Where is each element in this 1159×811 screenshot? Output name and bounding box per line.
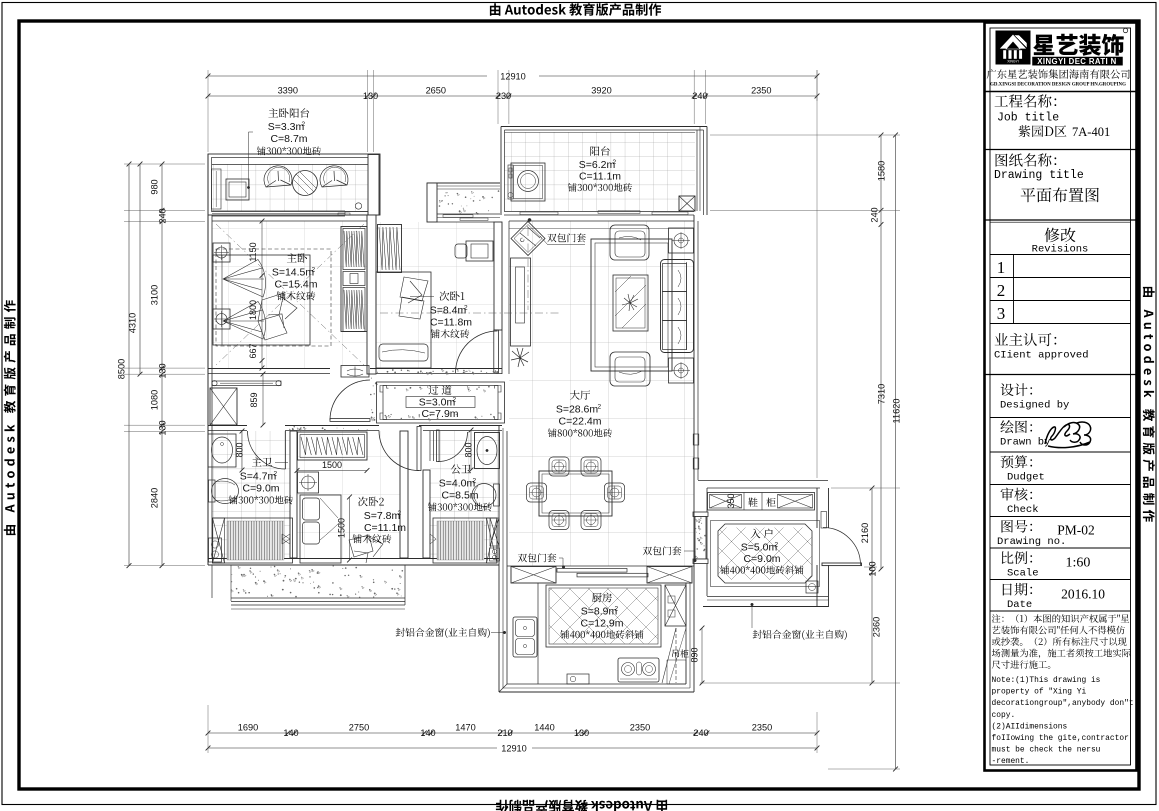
svg-text:2750: 2750 <box>349 723 369 733</box>
svg-text:890: 890 <box>690 647 700 662</box>
svg-text:C=9.0m: C=9.0m <box>743 553 780 565</box>
svg-text:11620: 11620 <box>892 399 902 424</box>
svg-text:C=11.1m: C=11.1m <box>579 171 621 183</box>
svg-text:2: 2 <box>453 397 457 404</box>
svg-text:copy.: copy. <box>992 711 1016 720</box>
svg-text:C=8.5m: C=8.5m <box>441 490 478 502</box>
svg-text:2: 2 <box>312 267 316 274</box>
svg-text:1500: 1500 <box>322 460 342 470</box>
svg-text:2350: 2350 <box>752 723 772 733</box>
svg-text:Drawing title: Drawing title <box>994 169 1084 182</box>
svg-text:2: 2 <box>613 159 617 166</box>
svg-text:2160: 2160 <box>860 523 870 543</box>
svg-text:2: 2 <box>473 478 477 485</box>
svg-text:C=11.1m: C=11.1m <box>364 522 406 534</box>
svg-text:3100: 3100 <box>150 285 160 305</box>
svg-text:S=5.0m: S=5.0m <box>741 542 778 554</box>
svg-text:240: 240 <box>870 207 880 222</box>
svg-text:XINGYI DEC RATI N: XINGYI DEC RATI N <box>1037 57 1116 66</box>
svg-text:240: 240 <box>693 728 708 738</box>
svg-text:Date: Date <box>1007 599 1032 611</box>
svg-text:8500: 8500 <box>117 359 127 379</box>
svg-text:C=12.9m: C=12.9m <box>581 618 624 630</box>
svg-text:4310: 4310 <box>128 313 138 333</box>
svg-text:2650: 2650 <box>426 86 446 96</box>
svg-text:2: 2 <box>398 510 402 517</box>
svg-text:859: 859 <box>249 392 259 407</box>
svg-text:1150: 1150 <box>248 242 258 261</box>
svg-text:Revisions: Revisions <box>1032 244 1089 256</box>
svg-text:1580: 1580 <box>877 161 887 181</box>
svg-text:130: 130 <box>158 420 168 435</box>
svg-text:Designed by: Designed by <box>1000 400 1069 412</box>
svg-text:800: 800 <box>464 442 474 457</box>
svg-text:C=9.0m: C=9.0m <box>242 483 279 495</box>
svg-text:C=15.4m: C=15.4m <box>275 279 318 291</box>
svg-text:S=14.5m: S=14.5m <box>272 267 315 279</box>
svg-text:XINGYI: XINGYI <box>1007 60 1019 64</box>
svg-text:1080: 1080 <box>150 390 160 410</box>
svg-text:S=8.9m: S=8.9m <box>581 606 618 618</box>
svg-text:1690: 1690 <box>238 723 258 733</box>
svg-text:2: 2 <box>274 471 278 478</box>
svg-text:S=3.3m: S=3.3m <box>268 121 305 133</box>
svg-text:210: 210 <box>497 728 512 738</box>
svg-text:3: 3 <box>997 304 1006 323</box>
svg-text:S=7.8m: S=7.8m <box>364 510 401 522</box>
svg-text:S=6.2m: S=6.2m <box>579 159 616 171</box>
svg-text:1: 1 <box>997 258 1006 277</box>
svg-text:Job title: Job title <box>997 112 1059 125</box>
svg-text:12910: 12910 <box>501 744 527 754</box>
svg-text:3920: 3920 <box>591 86 611 96</box>
svg-text:3390: 3390 <box>278 86 298 96</box>
svg-text:2350: 2350 <box>630 723 650 733</box>
svg-text:12910: 12910 <box>500 72 526 82</box>
svg-text:S=4.7m: S=4.7m <box>240 471 277 483</box>
svg-text:2840: 2840 <box>150 488 160 508</box>
svg-text:S=4.0m: S=4.0m <box>439 478 476 490</box>
svg-text:Drawing no.: Drawing no. <box>997 536 1066 548</box>
svg-text:Dudget: Dudget <box>1007 472 1045 484</box>
svg-text:2: 2 <box>997 281 1006 300</box>
svg-text:1470: 1470 <box>455 723 475 733</box>
svg-text:must be check the nersu: must be check the nersu <box>992 746 1101 755</box>
svg-text:2: 2 <box>302 121 306 128</box>
svg-text:GD.XINGSI DECORATION DESIGN GR: GD.XINGSI DECORATION DESIGN GROUP HN.GRO… <box>990 83 1126 88</box>
svg-text:Scale: Scale <box>1007 568 1039 580</box>
svg-text:240: 240 <box>158 208 168 223</box>
svg-text:C=7.9m: C=7.9m <box>421 408 458 420</box>
svg-text:2360: 2360 <box>872 617 882 637</box>
svg-text:2: 2 <box>598 404 602 411</box>
svg-text:1:60: 1:60 <box>1066 556 1091 571</box>
svg-text:S=3.0m: S=3.0m <box>419 397 456 409</box>
svg-text:1800: 1800 <box>248 300 258 320</box>
svg-text:Check: Check <box>1007 504 1039 516</box>
svg-text:foIIowing the gite,contractor: foIIowing the gite,contractor <box>992 734 1130 743</box>
svg-text:decorationgroup",anybody don"t: decorationgroup",anybody don"t <box>992 699 1134 708</box>
svg-text:CIient approved: CIient approved <box>994 350 1089 362</box>
svg-text:130: 130 <box>363 91 378 101</box>
svg-text:140: 140 <box>283 728 298 738</box>
svg-text:1500: 1500 <box>337 518 347 538</box>
svg-text:2016.10: 2016.10 <box>1061 587 1105 602</box>
svg-text:(2)AIIdimensions: (2)AIIdimensions <box>992 722 1068 731</box>
svg-text:100: 100 <box>868 561 878 576</box>
svg-text:7310: 7310 <box>877 384 887 404</box>
svg-text:Note:(1)This drawing is: Note:(1)This drawing is <box>992 676 1101 685</box>
svg-text:2: 2 <box>775 542 779 549</box>
svg-text:C=11.8m: C=11.8m <box>430 317 472 329</box>
svg-text:350: 350 <box>726 493 736 508</box>
svg-text:1440: 1440 <box>534 723 554 733</box>
svg-text:130: 130 <box>574 728 589 738</box>
svg-text:-rement.: -rement. <box>992 757 1030 766</box>
svg-text:C=8.7m: C=8.7m <box>270 133 307 145</box>
svg-text:property of "Xing Yi: property of "Xing Yi <box>992 688 1087 697</box>
svg-text:980: 980 <box>150 179 160 194</box>
svg-text:240: 240 <box>692 91 707 101</box>
svg-text:140: 140 <box>420 728 435 738</box>
svg-text:C=22.4m: C=22.4m <box>559 416 602 428</box>
svg-text:PM-02: PM-02 <box>1057 523 1095 538</box>
svg-text:2: 2 <box>464 305 468 312</box>
svg-text:2350: 2350 <box>751 86 771 96</box>
svg-text:S=28.6m: S=28.6m <box>556 404 599 416</box>
svg-text:Drawn by: Drawn by <box>1000 437 1050 449</box>
svg-text:130: 130 <box>158 363 168 378</box>
svg-text:2: 2 <box>615 606 619 613</box>
svg-text:7A-401: 7A-401 <box>1072 125 1110 139</box>
svg-text:S=8.4m: S=8.4m <box>430 305 467 317</box>
